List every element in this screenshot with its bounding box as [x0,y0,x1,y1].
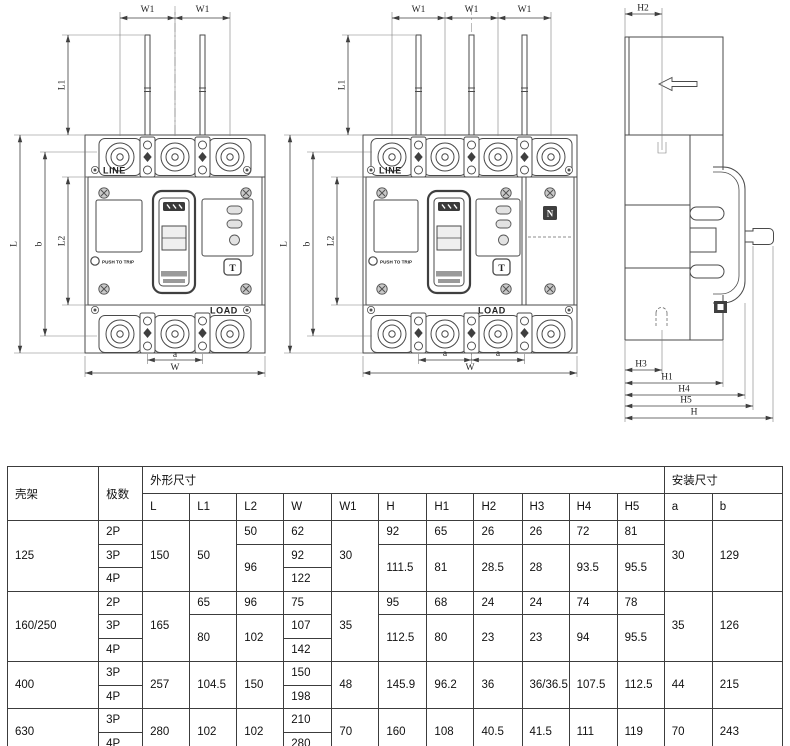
cell-b: 243 [712,709,782,746]
dim-label-w1: W1 [412,5,426,15]
cell-a: 44 [664,662,712,709]
terminal-prong [690,207,724,220]
cell-L2: 102 [237,615,284,662]
cell-H: 145.9 [379,662,427,709]
handle-bezel [713,167,745,303]
dim-label-l: L [10,241,20,247]
cell-H3: 36/36.5 [522,662,569,709]
dim-label-w1: W1 [465,5,479,15]
col-header-L: L [143,494,190,521]
dim-label-b: b [303,241,313,246]
cell-W1: 30 [332,521,379,592]
push-to-trip-label: PUSH TO TRIP [102,260,134,265]
row-125-2p: 125 2P 150 50 50 62 30 92 65 26 26 72 81… [8,521,783,545]
cell-H5: 78 [617,591,664,615]
cell-poles: 3P [99,662,143,686]
cell-H5: 95.5 [617,615,664,662]
front-view-3p: LINE LOAD T [10,5,266,377]
cell-W: 198 [284,685,332,709]
cell-H3: 41.5 [522,709,569,746]
trip-button[interactable] [369,257,377,265]
rating-label-block [163,279,185,283]
col-header-H1: H1 [427,494,474,521]
cell-H4: 74 [569,591,617,615]
terminal-prong [690,265,724,278]
cell-H1: 81 [427,544,474,591]
dim-label-l1: L1 [58,79,68,90]
side-view: H2 H3 H1 H4 H5 H [625,4,774,423]
cell-H4: 107.5 [569,662,617,709]
dim-label-h3: H3 [635,360,647,370]
cell-a: 35 [664,591,712,662]
cell-W: 280 [284,732,332,746]
cell-H5: 95.5 [617,544,664,591]
cell-poles: 4P [99,732,143,746]
cell-a: 30 [664,521,712,592]
header-row-groups: 壳架 极数 外形尺寸 安装尺寸 [8,467,783,494]
col-header-H4: H4 [569,494,617,521]
cell-frame: 160/250 [8,591,99,662]
cell-H2: 24 [474,591,522,615]
dim-label-w: W [171,363,180,373]
dim-label-w1: W1 [141,5,155,15]
dim-label-w1: W1 [196,5,210,15]
cell-W1: 35 [332,591,379,662]
indicator-light [227,206,242,214]
cell-H4: 94 [569,615,617,662]
line-label: LINE [379,166,402,176]
cell-H1: 80 [427,615,474,662]
cell-H: 92 [379,521,427,545]
dim-label-l: L [280,241,290,247]
cell-L1: 65 [190,591,237,615]
cell-W: 122 [284,568,332,592]
col-group-outline: 外形尺寸 [143,467,665,494]
cell-H4: 93.5 [569,544,617,591]
col-header-frame: 壳架 [8,467,99,521]
toggle-handle-side [745,229,774,245]
side-body [625,135,774,340]
nameplate-window [96,200,142,252]
cell-H: 160 [379,709,427,746]
col-header-H3: H3 [522,494,569,521]
col-header-L2: L2 [237,494,284,521]
cell-H2: 26 [474,521,522,545]
indicator-light [496,206,511,214]
cell-L: 280 [143,709,190,746]
cell-frame: 400 [8,662,99,709]
row-630-3p: 630 3P 280 102 102 210 70 160 108 40.5 4… [8,709,783,733]
dim-label-l2: L2 [327,235,337,246]
dim-label-h4: H4 [678,385,690,395]
cell-b: 215 [712,662,782,709]
rating-label-block [436,271,462,277]
neutral-label: N [547,209,554,219]
col-header-H5: H5 [617,494,664,521]
cell-H3: 24 [522,591,569,615]
dim-label-h5: H5 [680,396,692,406]
dim-label-h: H [691,408,698,418]
cell-W1: 48 [332,662,379,709]
cell-H1: 65 [427,521,474,545]
col-header-a: a [664,494,712,521]
push-to-trip-label: PUSH TO TRIP [380,260,412,265]
cell-H4: 72 [569,521,617,545]
cell-b: 126 [712,591,782,662]
indicator-light [230,235,240,245]
hidden-mounting-screw [656,308,667,328]
cell-L: 165 [143,591,190,662]
load-label: LOAD [478,306,506,316]
test-button-label: T [498,264,505,274]
dim-label-h1: H1 [661,373,673,383]
cell-L: 257 [143,662,190,709]
cell-poles: 4P [99,568,143,592]
nameplate-window [374,200,418,252]
cell-W: 150 [284,662,332,686]
col-header-L1: L1 [190,494,237,521]
cell-poles: 3P [99,709,143,733]
cell-H5: 119 [617,709,664,746]
cell-W: 210 [284,709,332,733]
cell-H2: 28.5 [474,544,522,591]
cell-H1: 108 [427,709,474,746]
cell-poles: 3P [99,544,143,568]
datasheet-page: LINE LOAD T [0,0,790,746]
cell-a: 70 [664,709,712,746]
cell-H2: 23 [474,615,522,662]
cell-H2: 36 [474,662,522,709]
front-view-4p: LINE LOAD N [280,5,578,377]
cell-W: 107 [284,615,332,639]
terminal-bars [415,35,528,137]
cell-poles: 3P [99,615,143,639]
cell-L2: 96 [237,544,284,591]
col-header-H: H [379,494,427,521]
cell-frame: 630 [8,709,99,746]
line-label: LINE [103,166,126,176]
cell-L: 150 [143,521,190,592]
cell-frame: 125 [8,521,99,592]
cell-W: 142 [284,638,332,662]
cell-H1: 68 [427,591,474,615]
cell-L1: 102 [190,709,237,746]
cell-H5: 112.5 [617,662,664,709]
col-header-b: b [712,494,782,521]
cell-poles: 4P [99,638,143,662]
cell-H3: 28 [522,544,569,591]
cell-W1: 70 [332,709,379,746]
rating-label-block [161,271,187,277]
cell-L1: 50 [190,521,237,592]
dim-label-h2: H2 [637,4,649,14]
dim-label-l2: L2 [58,235,68,246]
cell-L2: 50 [237,521,284,545]
cell-L2: 150 [237,662,284,709]
col-header-H2: H2 [474,494,522,521]
dim-label-w1: W1 [518,5,532,15]
rating-label-block [438,279,460,283]
cell-W: 92 [284,544,332,568]
cell-H2: 40.5 [474,709,522,746]
dim-label-w: W [466,363,475,373]
indicator-light [496,220,511,228]
cell-b: 129 [712,521,782,592]
cell-H5: 81 [617,521,664,545]
load-label: LOAD [210,306,238,316]
cell-poles: 2P [99,591,143,615]
cell-H3: 26 [522,521,569,545]
cell-H: 111.5 [379,544,427,591]
dim-label-l1: L1 [338,79,348,90]
cell-H4: 111 [569,709,617,746]
spec-table-section: 壳架 极数 外形尺寸 安装尺寸 L L1 L2 W W1 H H1 H2 H3 … [7,466,783,746]
cell-poles: 2P [99,521,143,545]
indicator-light [227,220,242,228]
cell-H: 112.5 [379,615,427,662]
col-header-W1: W1 [332,494,379,521]
trip-button[interactable] [91,257,99,265]
row-400-3p: 400 3P 257 104.5 150 150 48 145.9 96.2 3… [8,662,783,686]
test-button-label: T [229,264,236,274]
cell-L1: 80 [190,615,237,662]
dim-label-b: b [35,241,45,246]
cell-L1: 104.5 [190,662,237,709]
indicator-light [499,235,509,245]
cell-H3: 23 [522,615,569,662]
col-header-poles: 极数 [99,467,143,521]
cell-poles: 4P [99,685,143,709]
col-group-mounting: 安装尺寸 [664,467,782,494]
cell-H1: 96.2 [427,662,474,709]
cell-H: 95 [379,591,427,615]
dimensions-table: 壳架 极数 外形尺寸 安装尺寸 L L1 L2 W W1 H H1 H2 H3 … [7,466,783,746]
cell-L2: 102 [237,709,284,746]
cell-W: 75 [284,591,332,615]
dimension-drawings: LINE LOAD T [0,0,790,462]
cell-L2: 96 [237,591,284,615]
col-header-W: W [284,494,332,521]
cell-W: 62 [284,521,332,545]
row-160-2p: 160/250 2P 165 65 96 75 35 95 68 24 24 7… [8,591,783,615]
